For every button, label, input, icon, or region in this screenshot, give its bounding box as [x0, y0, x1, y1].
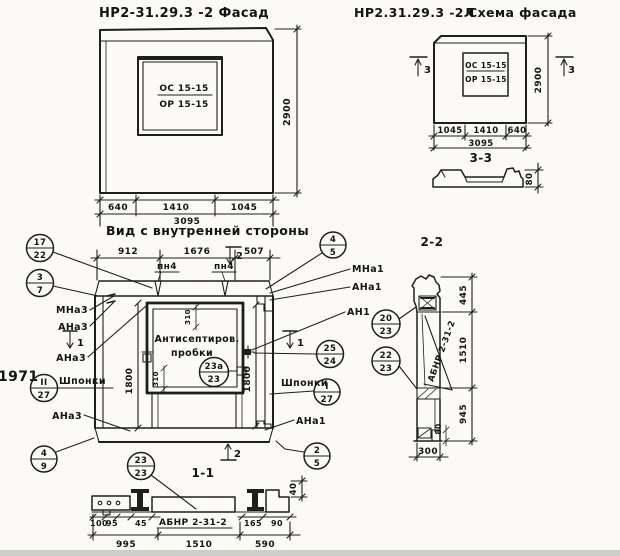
- bottom-dim-300: 300: [409, 443, 448, 461]
- callout-2-5: 2 5: [276, 441, 330, 469]
- callout-20-23: 20 23: [372, 307, 416, 338]
- svg-text:310: 310: [152, 371, 160, 387]
- svg-text:23: 23: [135, 469, 148, 479]
- svg-text:1: 1: [297, 338, 304, 349]
- callout-11-27: II 27: [31, 375, 58, 402]
- section-3-3-profile: [433, 168, 523, 187]
- dim-90: 90: [271, 519, 283, 528]
- section-3-mark-right: 3: [556, 57, 575, 76]
- label-mna1: МНа1: [352, 264, 384, 275]
- i-beam-left: [131, 489, 149, 511]
- svg-text:3: 3: [37, 273, 43, 283]
- depth-dim-40: 40: [289, 476, 307, 501]
- dim-995: 995: [116, 540, 136, 550]
- section-2-mark-bottom: 2: [221, 444, 241, 460]
- label-ana3-3: АНа3: [52, 411, 82, 422]
- facade-title: НР2-31.29.3 -2 Фасад: [99, 6, 269, 21]
- section-3-3-title: 3-3: [470, 151, 493, 165]
- schema-title-code: НР2.31.29.3 -2Л: [354, 5, 475, 20]
- svg-text:I: I: [325, 382, 329, 392]
- svg-text:2: 2: [314, 446, 320, 456]
- inner-view: Вид с внутренней стороны 912 1676 507 2 …: [0, 223, 384, 472]
- svg-text:9: 9: [41, 462, 47, 472]
- callout-3-7: 3 7: [27, 270, 99, 297]
- svg-text:27: 27: [38, 391, 51, 401]
- section-3-3-thickness-dim: 80: [525, 163, 543, 193]
- svg-text:23а: 23а: [205, 362, 224, 372]
- svg-text:II: II: [40, 378, 47, 388]
- joint-label-pn4-right: пн4: [214, 262, 234, 272]
- section-1-1-title: 1-1: [192, 466, 215, 480]
- svg-text:4: 4: [330, 235, 336, 245]
- facade-window: [138, 57, 222, 135]
- section-2-2-title: 2-2: [421, 235, 444, 249]
- year-stamp: 1971: [0, 369, 39, 385]
- svg-text:22: 22: [34, 251, 47, 261]
- window-dim-310-bottom: 310: [152, 365, 167, 392]
- dim-1045: 1045: [437, 126, 462, 136]
- svg-text:1800: 1800: [125, 368, 135, 395]
- dim-1410: 1410: [163, 203, 190, 213]
- svg-text:1: 1: [77, 338, 84, 349]
- svg-text:23: 23: [380, 364, 393, 374]
- svg-text:17: 17: [34, 238, 47, 248]
- label-an1: АН1: [347, 307, 370, 318]
- svg-text:40: 40: [289, 483, 299, 496]
- dim-45: 45: [135, 519, 147, 528]
- dim-1510: 1510: [459, 337, 469, 364]
- svg-text:23: 23: [135, 456, 148, 466]
- sill-block: [417, 388, 440, 399]
- dim-165: 165: [244, 519, 262, 528]
- label-ana1-1: АНа1: [352, 282, 382, 293]
- svg-text:2: 2: [236, 251, 243, 262]
- inner-top-dims: 912 1676 507: [91, 247, 280, 280]
- svg-text:24: 24: [324, 357, 337, 367]
- right-dim-chain: 445 1510 945: [441, 273, 477, 445]
- section-1-mark-left: 1: [63, 331, 84, 349]
- panel-drawing-svg: НР2-31.29.3 -2 Фасад ОС 15-15 ОР 15-15 2…: [0, 0, 620, 556]
- schema-view: НР2.31.29.3 -2Л Схема фасада ОС 15-15 ОР…: [354, 5, 577, 151]
- notch-dim-80: 80: [434, 423, 449, 446]
- svg-text:23: 23: [208, 375, 221, 385]
- dim-1510: 1510: [186, 540, 213, 550]
- facade-window-mark-or: ОР 15-15: [159, 100, 208, 110]
- callout-23a-23: 23а 23: [200, 358, 238, 387]
- dim-445: 445: [459, 285, 469, 305]
- svg-text:80: 80: [434, 423, 443, 434]
- inner-view-title: Вид с внутренней стороны: [106, 223, 309, 238]
- note-antiseptic-2: пробки: [171, 348, 213, 359]
- label-shponki-right: Шпонки: [281, 378, 328, 389]
- dim-912: 912: [118, 247, 138, 257]
- schema-window-mark-or: ОР 15-15: [465, 75, 507, 84]
- schema-width-dims: 1045 1410 640 3095: [429, 125, 531, 151]
- facade-panel-outline: [100, 28, 273, 193]
- section-1-mark-right: 1: [283, 331, 304, 349]
- label-shponki-left: Шпонки: [59, 376, 106, 387]
- svg-text:1800: 1800: [243, 366, 253, 393]
- dim-1045: 1045: [231, 203, 258, 213]
- i-beam-right: [247, 489, 264, 511]
- facade-view: НР2-31.29.3 -2 Фасад ОС 15-15 ОР 15-15 2…: [95, 6, 301, 227]
- label-ana3-2: АНа3: [56, 353, 86, 364]
- height-dim-1800-right: 1800: [243, 302, 259, 429]
- svg-text:80: 80: [525, 173, 535, 186]
- svg-text:25: 25: [324, 344, 337, 354]
- svg-text:7: 7: [37, 286, 43, 296]
- beam-slab: [152, 497, 235, 512]
- joint-label-pn4-left: пн4: [157, 262, 177, 272]
- label-mna3: МНа3: [56, 305, 88, 316]
- label-ana3-1: АНа3: [58, 322, 88, 333]
- dim-640: 640: [108, 203, 128, 213]
- svg-text:3: 3: [424, 65, 431, 76]
- facade-height-dim: 2900: [275, 25, 301, 197]
- svg-text:22: 22: [380, 351, 393, 361]
- dim-1676: 1676: [184, 247, 211, 257]
- svg-text:2900: 2900: [534, 67, 544, 94]
- dim-1410: 1410: [473, 126, 498, 136]
- svg-text:2900: 2900: [282, 98, 293, 126]
- callout-1-27: I 27: [314, 379, 340, 405]
- drawing-sheet: НР2-31.29.3 -2 Фасад ОС 15-15 ОР 15-15 2…: [0, 0, 620, 556]
- callout-4-5: 4 5: [266, 232, 346, 289]
- section-3-mark-left: 3: [410, 57, 431, 76]
- svg-text:27: 27: [321, 395, 334, 405]
- section-1-1: 1-1 23 23 АБНР 2-31-2 100 95: [88, 453, 307, 551]
- small-dims-right: 165 90: [238, 514, 296, 528]
- facade-window-mark-os: ОС 15-15: [159, 84, 208, 94]
- beam-mark-label: АБНР 2-31-2: [426, 319, 457, 383]
- section-2-2: 2-2 80 АБНР 2-31-2: [372, 235, 477, 461]
- schema-height-dim: 2900: [528, 33, 552, 126]
- svg-text:20: 20: [380, 314, 393, 324]
- dim-945: 945: [459, 404, 469, 424]
- height-dim-1800-left: 1800: [125, 300, 141, 431]
- beam-mark-label: АБНР 2-31-2: [159, 518, 227, 528]
- label-ana1-2: АНа1: [296, 416, 326, 427]
- inner-top-cap: [95, 281, 273, 296]
- svg-text:4: 4: [41, 449, 47, 459]
- section-3-3: 3-3 80: [433, 151, 543, 193]
- svg-text:3: 3: [568, 65, 575, 76]
- dim-640: 640: [508, 126, 527, 136]
- note-antiseptic-1: Антисептиров.: [154, 334, 239, 345]
- svg-text:310: 310: [184, 309, 192, 325]
- dim-95: 95: [106, 519, 118, 528]
- svg-text:300: 300: [418, 447, 438, 457]
- right-step-block: [266, 490, 289, 512]
- small-dims-left: 100 95 45: [90, 514, 160, 528]
- svg-text:2: 2: [234, 449, 241, 460]
- svg-text:23: 23: [380, 327, 393, 337]
- scan-edge: [0, 550, 620, 556]
- schema-title-name: Схема фасада: [468, 5, 577, 20]
- dim-507: 507: [244, 247, 264, 257]
- callout-4-9: 4 9: [31, 438, 94, 472]
- svg-text:5: 5: [330, 248, 336, 258]
- schema-window-mark-os: ОС 15-15: [465, 61, 507, 70]
- callout-22-23: 22 23: [372, 347, 417, 389]
- window-dim-310-top: 310: [184, 304, 199, 330]
- callout-17-22: 17 22: [27, 235, 153, 289]
- dim-590: 590: [255, 540, 275, 550]
- svg-text:5: 5: [314, 459, 320, 469]
